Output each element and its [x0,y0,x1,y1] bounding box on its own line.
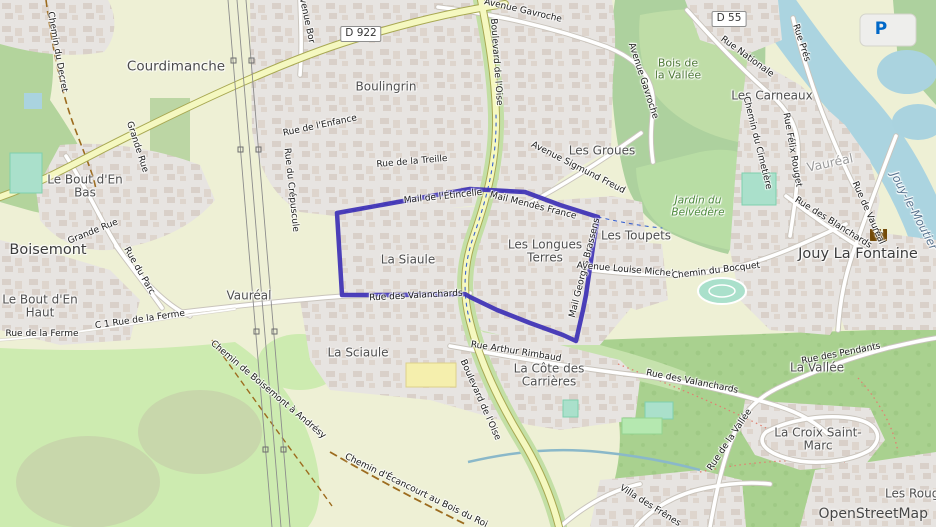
map-canvas[interactable]: CourdimancheBoisemontJouy La FontaineVau… [0,0,936,527]
map-tiles [0,0,936,527]
osm-attribution-link[interactable]: OpenStreetMap [819,506,928,522]
parking-icon: P [875,19,887,39]
castle-icon [870,229,887,241]
road-ref-badge-d-55: D 55 [712,11,747,27]
road-ref-badge-d-922: D 922 [340,26,381,42]
